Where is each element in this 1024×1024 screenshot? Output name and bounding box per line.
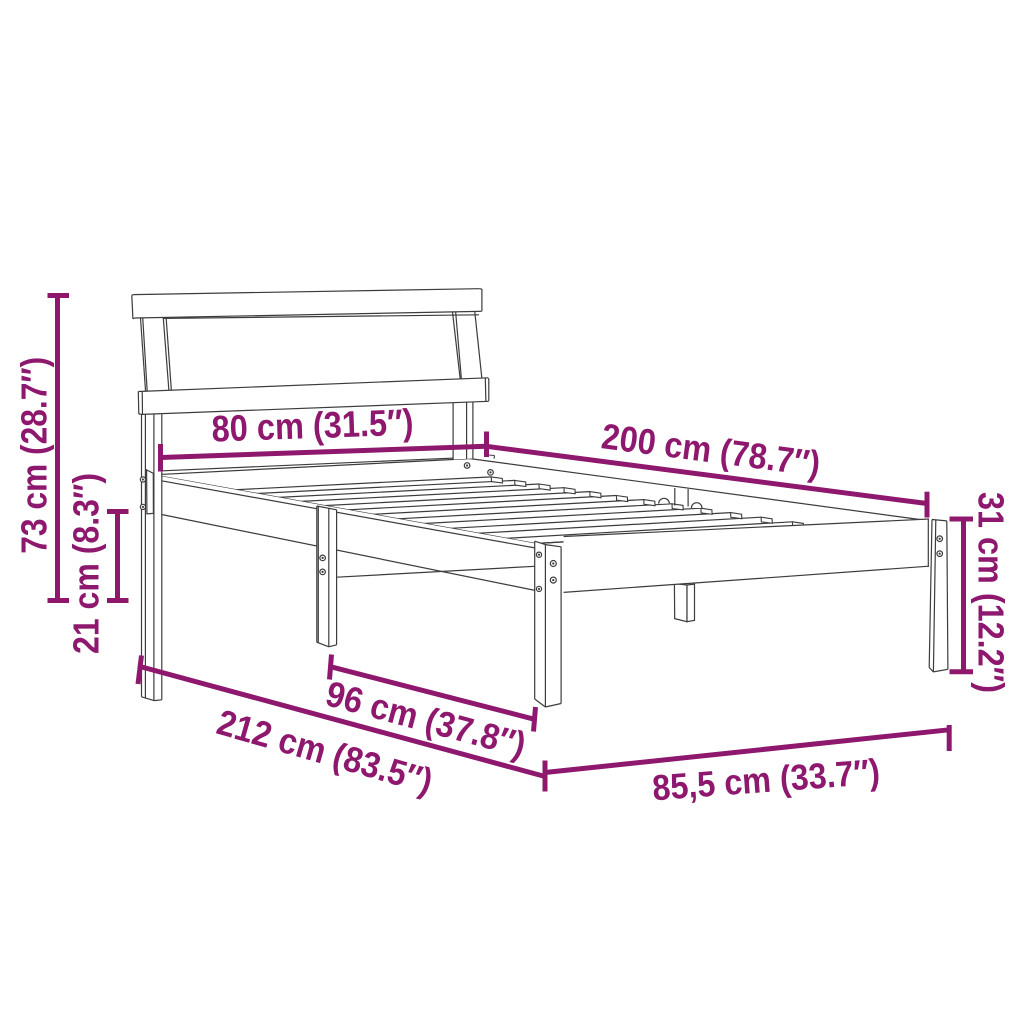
svg-text:31 cm (12.2″): 31 cm (12.2″) xyxy=(971,492,1012,693)
svg-text:73 cm (28.7″): 73 cm (28.7″) xyxy=(14,357,55,554)
svg-text:21 cm (8.3″): 21 cm (8.3″) xyxy=(66,473,107,654)
svg-text:80 cm (31.5″): 80 cm (31.5″) xyxy=(211,402,414,450)
